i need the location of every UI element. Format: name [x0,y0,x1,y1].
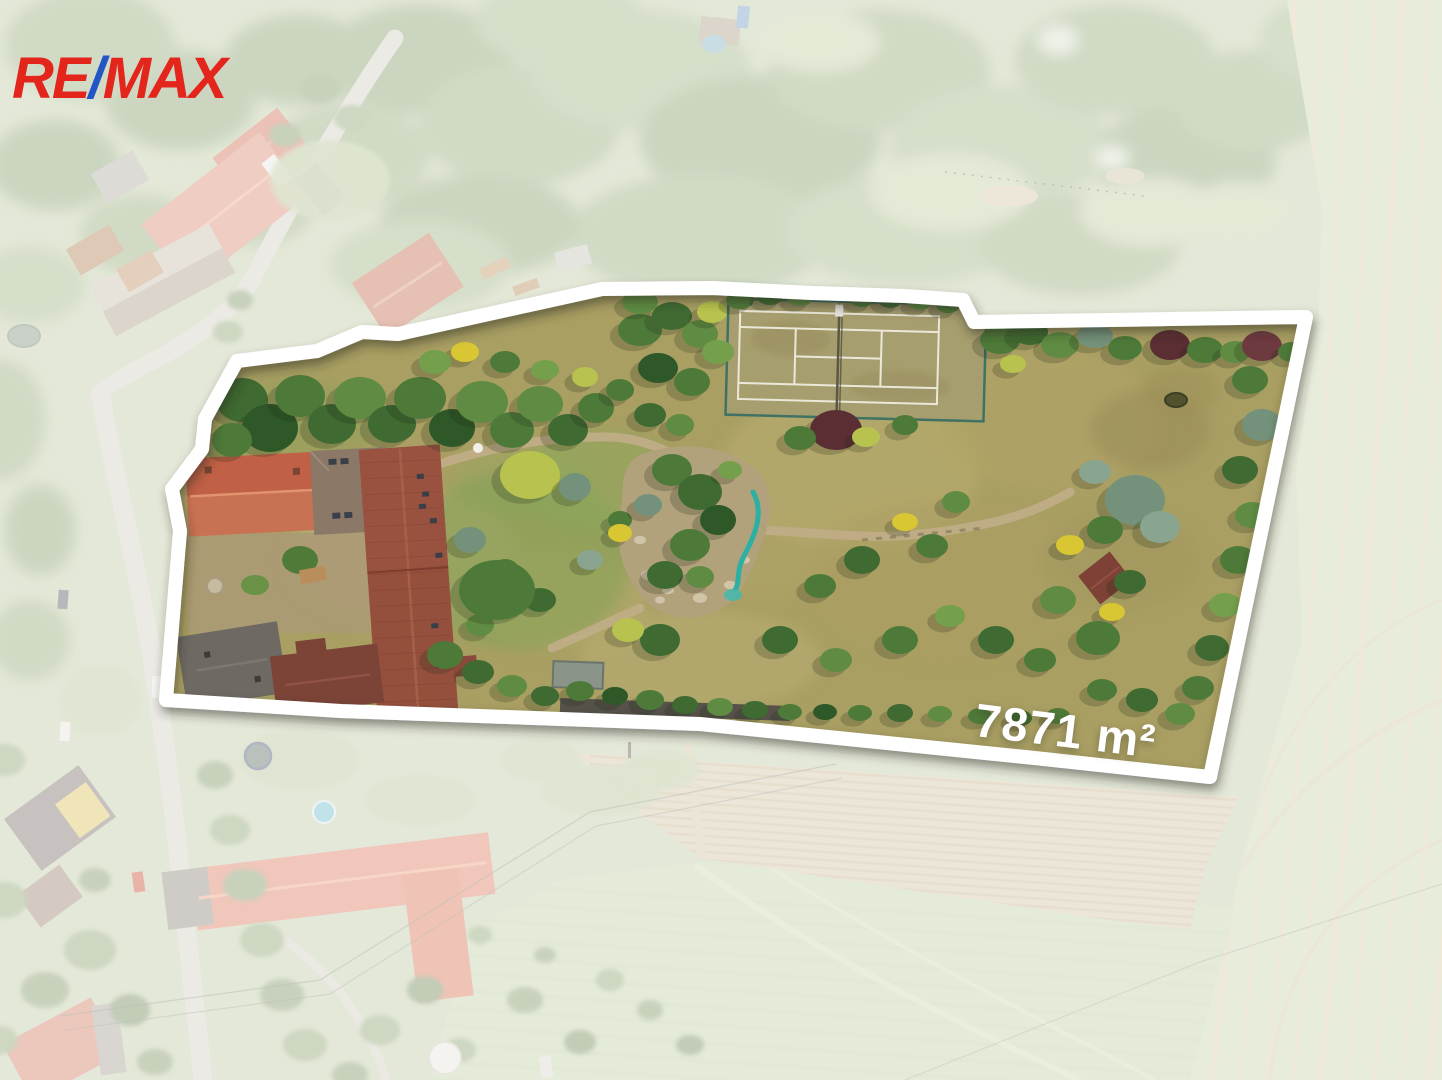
logo-re: RE [12,46,89,111]
logo-max: MAX [103,46,226,111]
remax-logo: RE/MAX [12,50,226,108]
aerial-photo [0,0,1442,1080]
aerial-listing-image: RE/MAX 7871 m² [0,0,1442,1080]
logo-slash-icon: / [89,46,103,111]
